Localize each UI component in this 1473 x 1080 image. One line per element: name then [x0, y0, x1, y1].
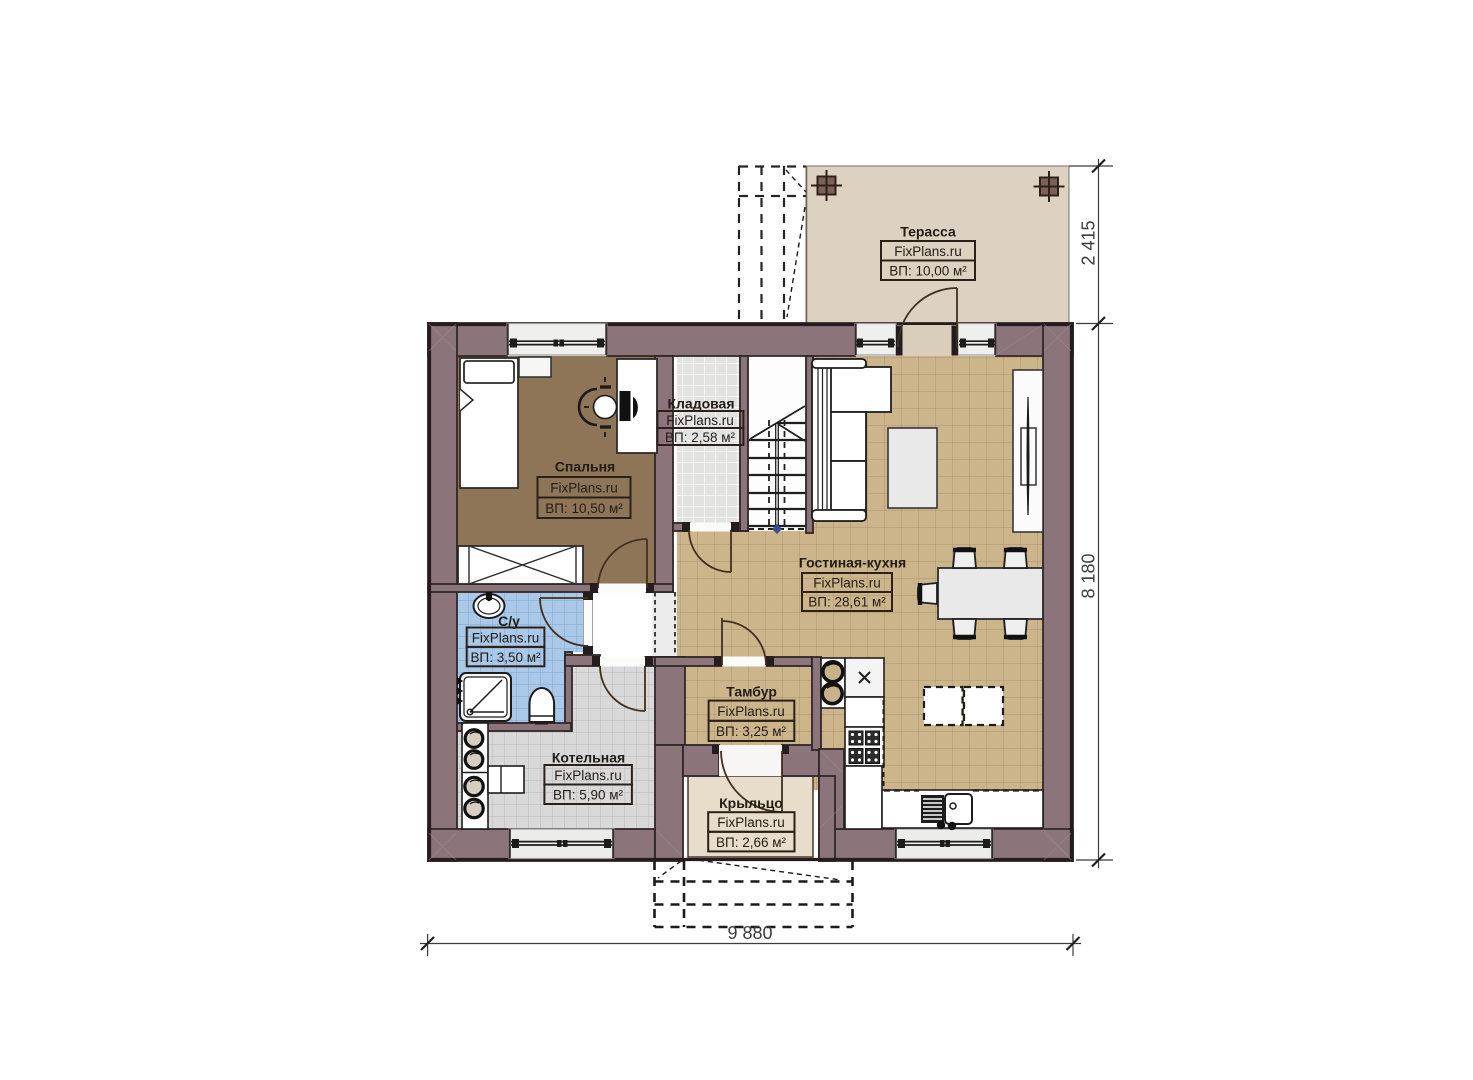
svg-text:FixPlans.ru: FixPlans.ru [550, 481, 618, 496]
svg-text:ВП: 3,25 м²: ВП: 3,25 м² [716, 724, 787, 739]
svg-text:ВП: 10,50 м²: ВП: 10,50 м² [545, 501, 623, 516]
svg-text:Котельная: Котельная [552, 750, 625, 766]
svg-text:FixPlans.ru: FixPlans.ru [813, 576, 881, 591]
svg-text:Терасса: Терасса [900, 224, 956, 240]
svg-text:FixPlans.ru: FixPlans.ru [554, 768, 622, 783]
svg-text:FixPlans.ru: FixPlans.ru [894, 244, 962, 259]
svg-text:Гостиная-кухня: Гостиная-кухня [799, 555, 906, 571]
svg-text:ВП: 2,66 м²: ВП: 2,66 м² [716, 835, 787, 850]
svg-text:ВП: 10,00 м²: ВП: 10,00 м² [889, 264, 967, 279]
svg-text:FixPlans.ru: FixPlans.ru [666, 413, 734, 428]
svg-text:ВП: 2,58 м²: ВП: 2,58 м² [665, 430, 736, 445]
svg-text:Тамбур: Тамбур [726, 684, 777, 700]
svg-text:FixPlans.ru: FixPlans.ru [472, 631, 540, 646]
svg-text:8 180: 8 180 [1079, 553, 1099, 598]
svg-text:ВП: 5,90 м²: ВП: 5,90 м² [553, 788, 624, 803]
svg-text:ВП: 3,50 м²: ВП: 3,50 м² [470, 650, 541, 665]
svg-text:FixPlans.ru: FixPlans.ru [717, 704, 785, 719]
svg-text:ВП: 28,61 м²: ВП: 28,61 м² [808, 595, 886, 610]
svg-text:FixPlans.ru: FixPlans.ru [717, 815, 785, 830]
svg-text:2 415: 2 415 [1079, 220, 1099, 265]
svg-text:Спальня: Спальня [555, 459, 615, 475]
svg-text:Крыльцо: Крыльцо [719, 795, 783, 811]
svg-text:9 880: 9 880 [727, 923, 772, 943]
svg-text:Кладовая: Кладовая [667, 396, 734, 412]
